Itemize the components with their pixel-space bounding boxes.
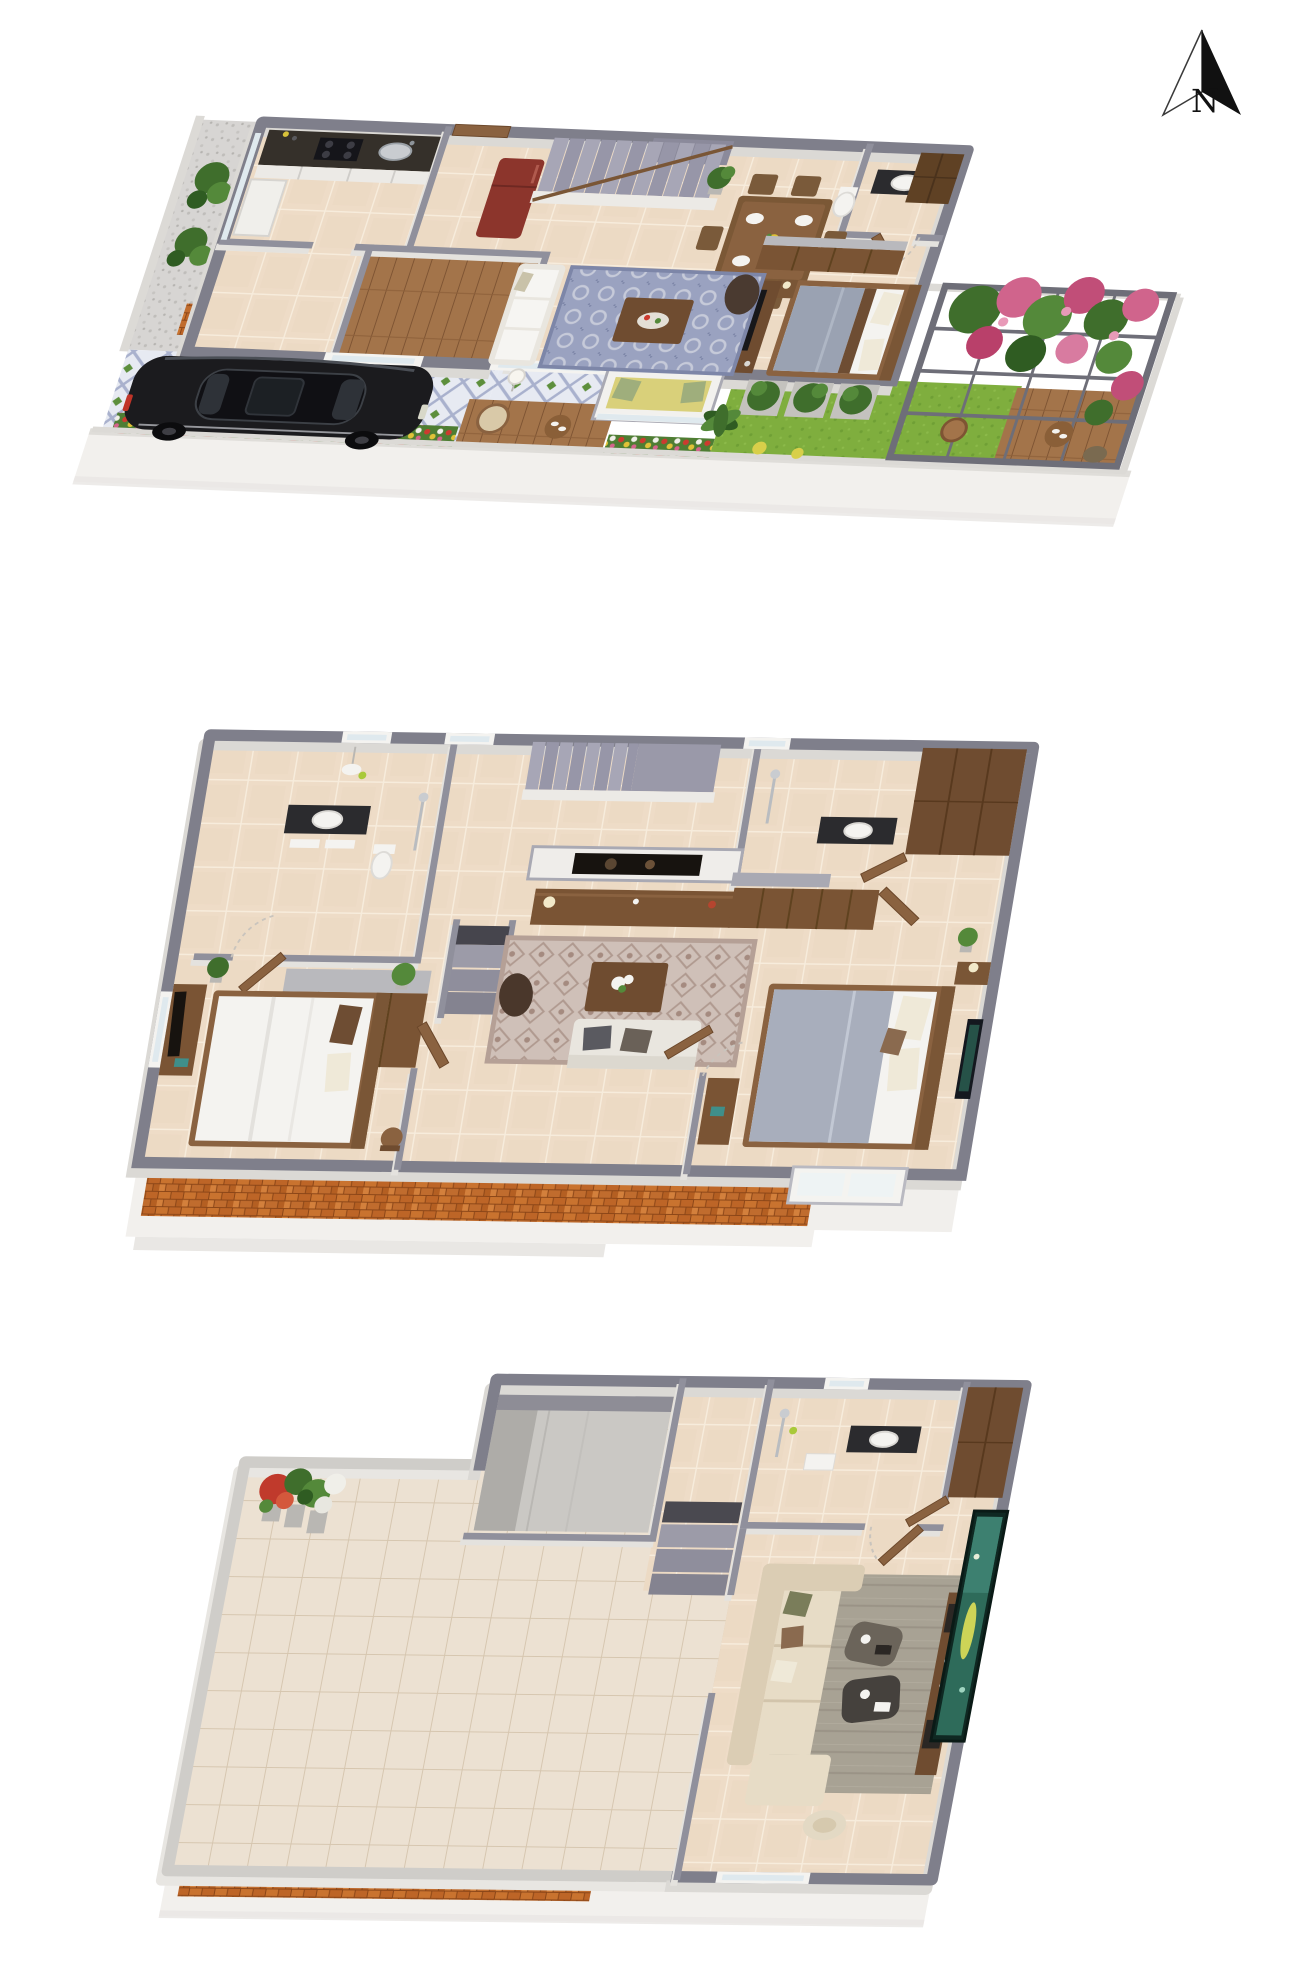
- stair-well-enclosure: [474, 1385, 676, 1532]
- basin: [869, 1432, 899, 1448]
- stair-flight-up: [521, 742, 723, 803]
- coffee-table: [612, 297, 695, 344]
- terrace-floor-plan: [155, 1376, 1032, 1927]
- front-window-bay: [788, 1167, 908, 1205]
- toilet-bench: [803, 1454, 835, 1471]
- north-compass: N: [1163, 30, 1241, 120]
- tv-feature-wall: [528, 847, 743, 883]
- stove: [313, 137, 363, 161]
- ground-floor-plan: [72, 114, 1234, 527]
- basin: [843, 823, 873, 839]
- media-console: [530, 889, 736, 928]
- shrub-planters: [738, 380, 881, 420]
- first-floor-plan: [119, 735, 1033, 1263]
- bedroom-2-bed: [188, 990, 391, 1149]
- lounge-coffee-table: [584, 962, 669, 1013]
- master-bed: [742, 984, 956, 1150]
- staircase: [530, 134, 737, 211]
- bedside-table: [954, 962, 991, 985]
- floor-plan-poster: N: [0, 0, 1297, 1985]
- floor-plans-illustration: N: [0, 0, 1297, 1985]
- north-label: N: [1191, 82, 1219, 120]
- dresser-unit: [755, 236, 908, 275]
- rear-door: [452, 124, 510, 137]
